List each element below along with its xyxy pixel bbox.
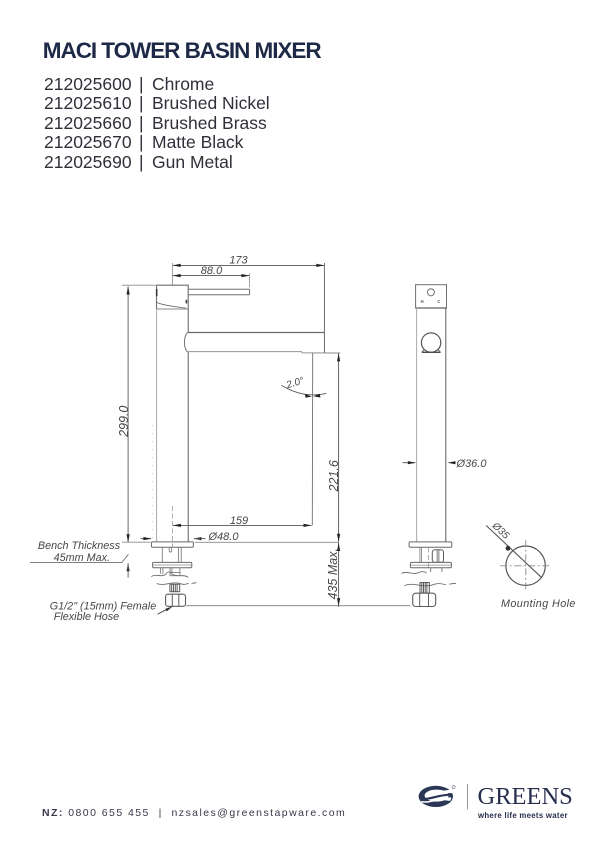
svg-text:Ø48.0: Ø48.0	[208, 531, 240, 543]
svg-text:Flexible Hose: Flexible Hose	[54, 611, 119, 623]
svg-text:C: C	[437, 299, 440, 304]
svg-text:221.6: 221.6	[327, 460, 341, 492]
svg-text:Ø36.0: Ø36.0	[456, 458, 488, 470]
svg-text:2.0°: 2.0°	[284, 375, 305, 391]
svg-text:45mm Max.: 45mm Max.	[54, 552, 110, 564]
svg-text:88.0: 88.0	[201, 265, 223, 277]
svg-text:299.0: 299.0	[117, 406, 131, 438]
svg-text:435 Max.: 435 Max.	[326, 548, 340, 599]
svg-text:159: 159	[230, 515, 248, 527]
svg-text:H: H	[421, 299, 424, 304]
svg-text:173: 173	[229, 254, 248, 266]
svg-text:Bench Thickness: Bench Thickness	[38, 540, 121, 552]
svg-text:Mounting Hole: Mounting Hole	[501, 598, 576, 610]
